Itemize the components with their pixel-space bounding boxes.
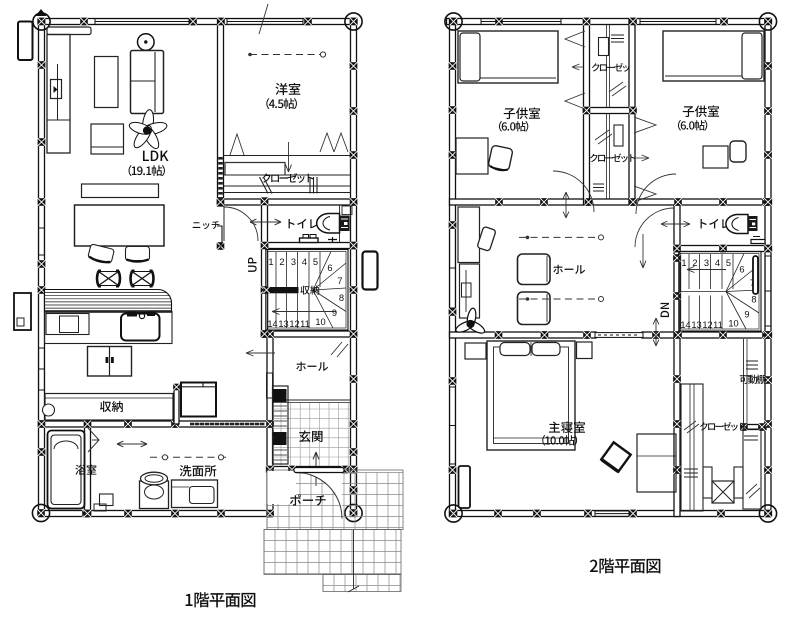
svg-text:3: 3 xyxy=(291,257,296,267)
svg-text:13: 13 xyxy=(278,319,288,329)
svg-text:14: 14 xyxy=(267,319,277,329)
svg-text:5: 5 xyxy=(726,258,731,268)
svg-text:4: 4 xyxy=(715,258,720,268)
svg-text:7: 7 xyxy=(337,276,342,286)
svg-text:1: 1 xyxy=(268,257,273,267)
svg-text:8: 8 xyxy=(339,293,344,303)
svg-text:10: 10 xyxy=(728,319,738,329)
svg-text:11: 11 xyxy=(713,320,723,330)
svg-text:11: 11 xyxy=(300,319,310,329)
svg-text:2: 2 xyxy=(692,258,697,268)
svg-text:5: 5 xyxy=(313,257,318,267)
svg-text:9: 9 xyxy=(744,310,749,320)
svg-text:12: 12 xyxy=(702,320,712,330)
svg-text:13: 13 xyxy=(691,320,701,330)
svg-text:14: 14 xyxy=(680,320,690,330)
svg-text:2: 2 xyxy=(279,257,284,267)
svg-text:8: 8 xyxy=(751,295,756,305)
svg-text:9: 9 xyxy=(332,308,337,318)
svg-text:6: 6 xyxy=(327,263,332,273)
svg-text:6: 6 xyxy=(739,265,744,275)
svg-text:3: 3 xyxy=(704,258,709,268)
svg-text:4: 4 xyxy=(302,257,307,267)
svg-text:1: 1 xyxy=(681,258,686,268)
svg-text:10: 10 xyxy=(315,317,325,327)
svg-text:12: 12 xyxy=(289,319,299,329)
